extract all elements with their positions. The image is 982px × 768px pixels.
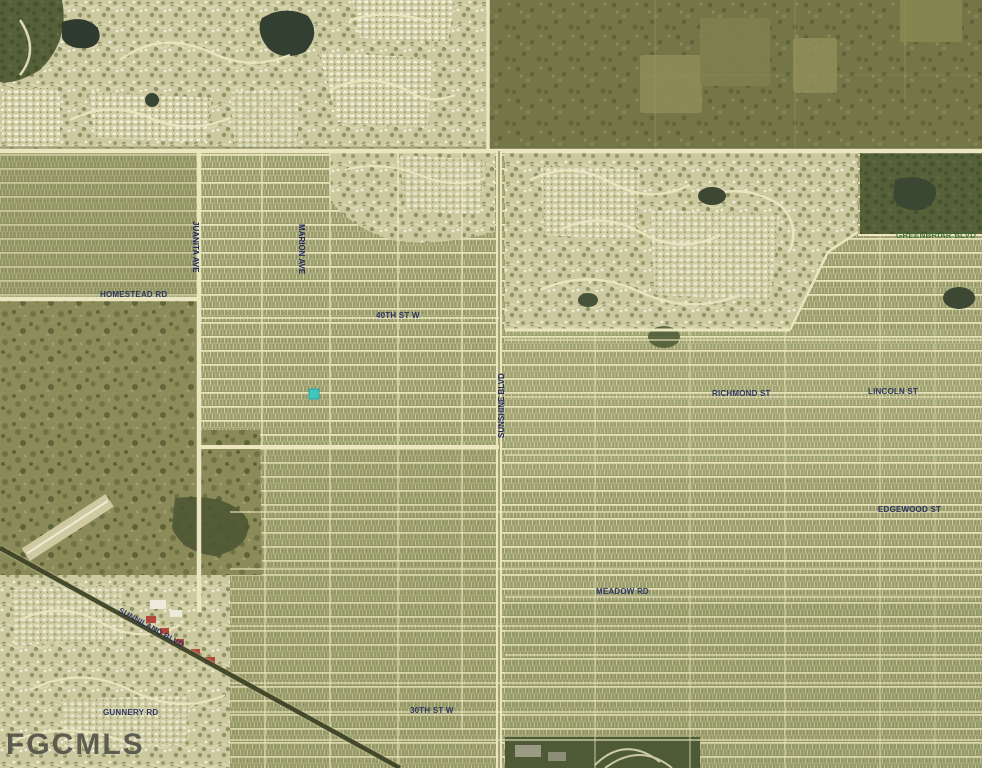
street-label-edgewood-st: EDGEWOOD ST (878, 505, 941, 514)
street-label-40th-st-w: 40TH ST W (376, 311, 420, 320)
lake-east (893, 177, 936, 210)
street-label-marion-ave: MARION AVE (297, 224, 306, 275)
street-label-richmond-st: RICHMOND ST (712, 389, 771, 398)
roof-cluster-4 (230, 88, 300, 150)
mls-watermark: FGCMLS (6, 728, 145, 762)
street-label-juanita-ave: JUANITA AVE (191, 221, 200, 273)
street-label-greenbriar-blvd: GREENBRIAR BLVD (896, 231, 976, 240)
pond-ne (698, 187, 726, 205)
pond-small (145, 93, 159, 107)
satellite-map-image[interactable]: HOMESTEAD RD JUANITA AVE MARION AVE 40TH… (0, 0, 982, 768)
street-label-homestead-rd: HOMESTEAD RD (100, 290, 167, 299)
street-label-meadow-rd: MEADOW RD (596, 587, 649, 596)
street-label-gunnery-rd: GUNNERY RD (103, 708, 158, 717)
street-label-lincoln-st: LINCOLN ST (868, 387, 918, 396)
property-marker[interactable] (309, 389, 319, 399)
satellite-map[interactable]: HOMESTEAD RD JUANITA AVE MARION AVE 40TH… (0, 0, 982, 768)
maze-subdivision (2, 88, 60, 146)
roof-cluster-3 (352, 0, 455, 42)
street-label-sunshine-blvd: SUNSHINE BLVD (497, 373, 506, 438)
street-label-30th-st-w: 30TH ST W (410, 706, 454, 715)
pond-east-edge (943, 287, 975, 309)
